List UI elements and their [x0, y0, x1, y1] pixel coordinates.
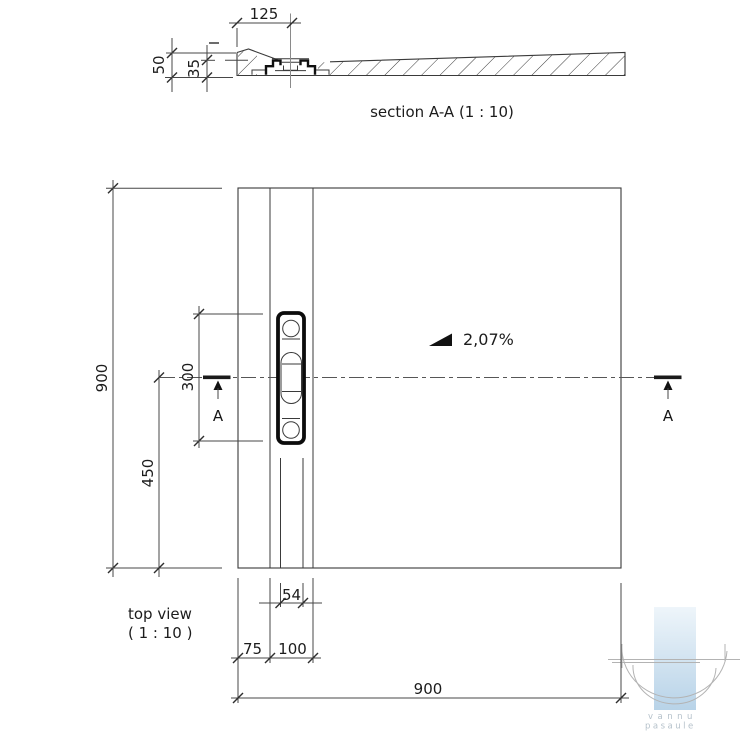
dim-450-label: 450	[139, 459, 157, 488]
watermark-blue-bar	[654, 607, 696, 710]
dim-900-bottom: 900	[231, 680, 629, 703]
dim-54-label: 54	[282, 586, 301, 604]
top-view: 2,07% A A 900 450	[93, 180, 682, 703]
watermark-word2: pasaule	[645, 722, 696, 732]
cut-label-right: A	[663, 407, 674, 425]
dim-900-left-label: 900	[93, 364, 111, 393]
slope-annotation: 2,07%	[429, 330, 514, 349]
dim-900-bottom-label: 900	[414, 680, 443, 698]
dim-125-label: 125	[250, 5, 279, 23]
dim-50: 50	[150, 38, 177, 92]
dim-450: 450	[139, 370, 164, 577]
section-view: 125 50 35 section A-A (1 : 10)	[150, 5, 625, 121]
dim-75-100: 75 100	[231, 640, 321, 663]
watermark-logo: vannu pasaule	[608, 607, 740, 732]
top-view-title-line2: ( 1 : 10 )	[128, 624, 192, 642]
drain-grate-frame	[278, 313, 304, 443]
drain-flange-left	[266, 61, 281, 75]
dim-50-label: 50	[150, 55, 168, 74]
dim-35: 35	[185, 45, 212, 92]
drain-flange-right	[301, 61, 316, 75]
dim-75-label: 75	[243, 640, 262, 658]
cut-label-left: A	[213, 407, 224, 425]
drain-grate	[278, 313, 304, 443]
section-marker-right: A	[654, 377, 682, 425]
section-hatch-wedge	[238, 50, 257, 76]
technical-drawing: vannu pasaule 125	[0, 0, 744, 733]
section-view-title: section A-A (1 : 10)	[370, 103, 514, 121]
dim-100-label: 100	[278, 640, 307, 658]
watermark-word1: vannu	[648, 712, 697, 722]
dim-35-label: 35	[185, 59, 203, 78]
drawing-canvas: vannu pasaule 125	[0, 0, 744, 733]
section-hatch-body	[318, 53, 625, 75]
slope-triangle-icon	[429, 334, 452, 347]
section-marker-left: A	[203, 377, 231, 425]
dim-300-label: 300	[179, 363, 197, 392]
top-view-title-line1: top view	[128, 605, 192, 623]
slope-label: 2,07%	[463, 330, 514, 349]
